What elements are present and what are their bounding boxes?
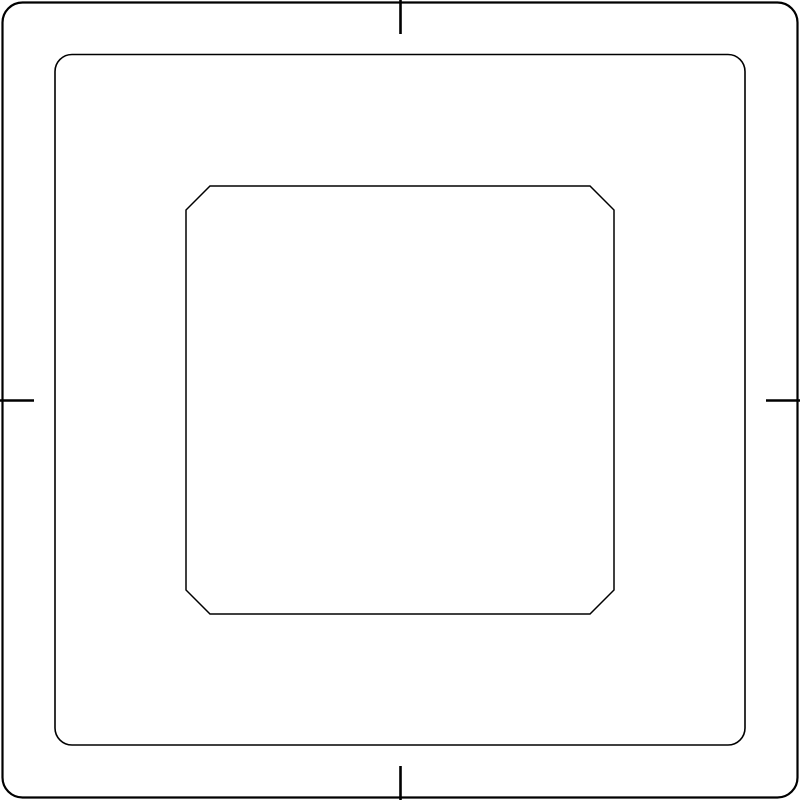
- inner-chamfered-square: [186, 186, 614, 614]
- middle-rounded-frame: [55, 55, 745, 746]
- line-group: [0, 0, 800, 800]
- stencil-canvas: [0, 0, 800, 800]
- outer-rounded-frame: [3, 3, 798, 798]
- stencil-drawing: [0, 0, 800, 800]
